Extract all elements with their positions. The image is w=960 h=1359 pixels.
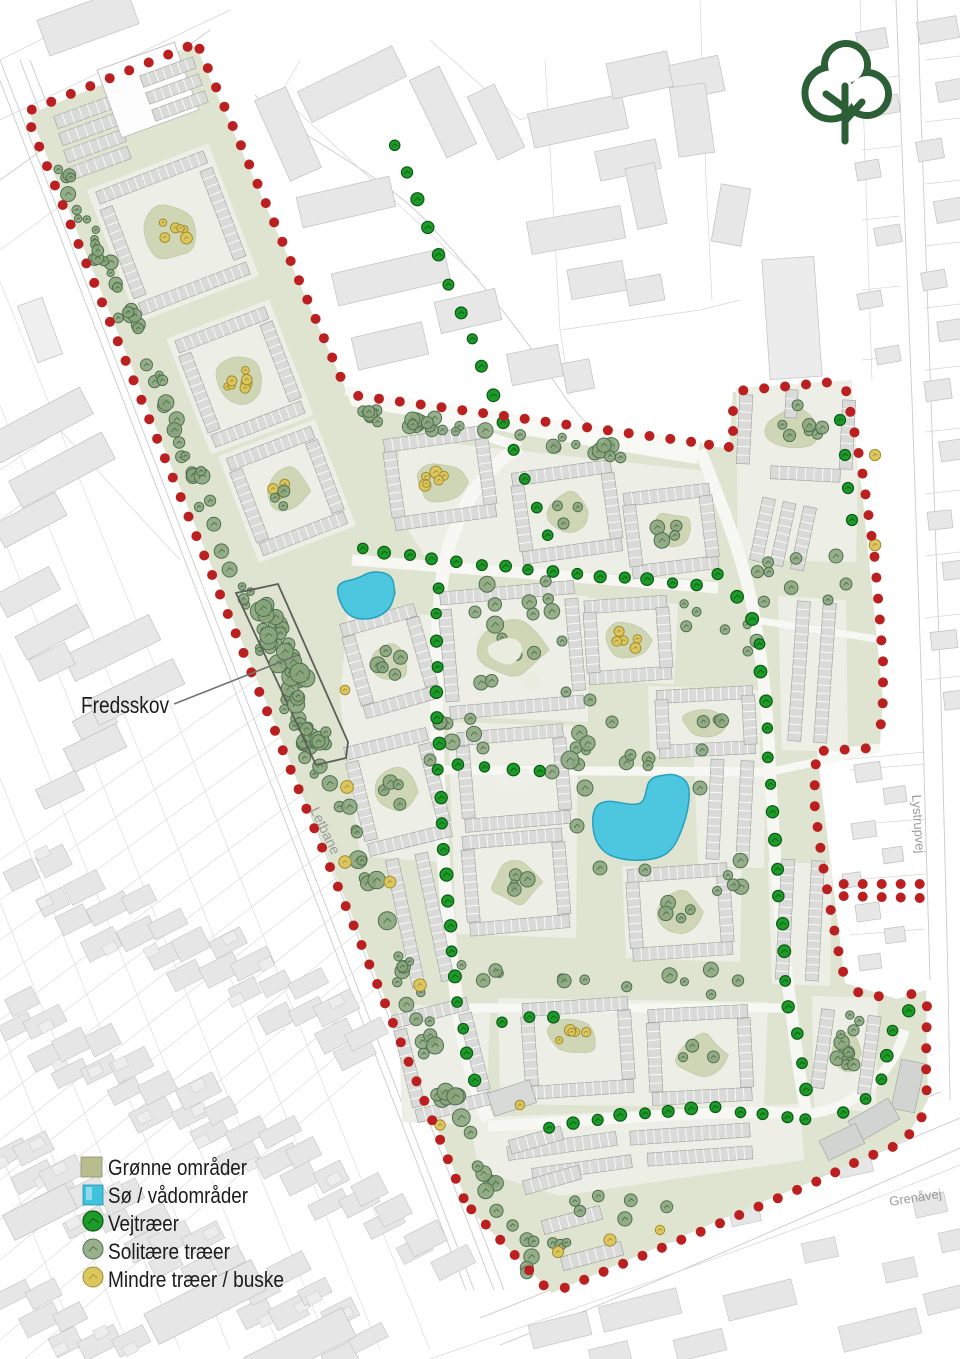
svg-text:Fredsskov: Fredsskov bbox=[81, 692, 169, 718]
svg-text:Mindre træer / buske: Mindre træer / buske bbox=[108, 1267, 284, 1292]
svg-text:Grønne områder: Grønne områder bbox=[108, 1155, 247, 1180]
svg-text:Solitære træer: Solitære træer bbox=[108, 1239, 230, 1264]
svg-text:Sø / vådområder: Sø / vådområder bbox=[108, 1183, 248, 1208]
svg-text:Vejtræer: Vejtræer bbox=[108, 1211, 179, 1236]
